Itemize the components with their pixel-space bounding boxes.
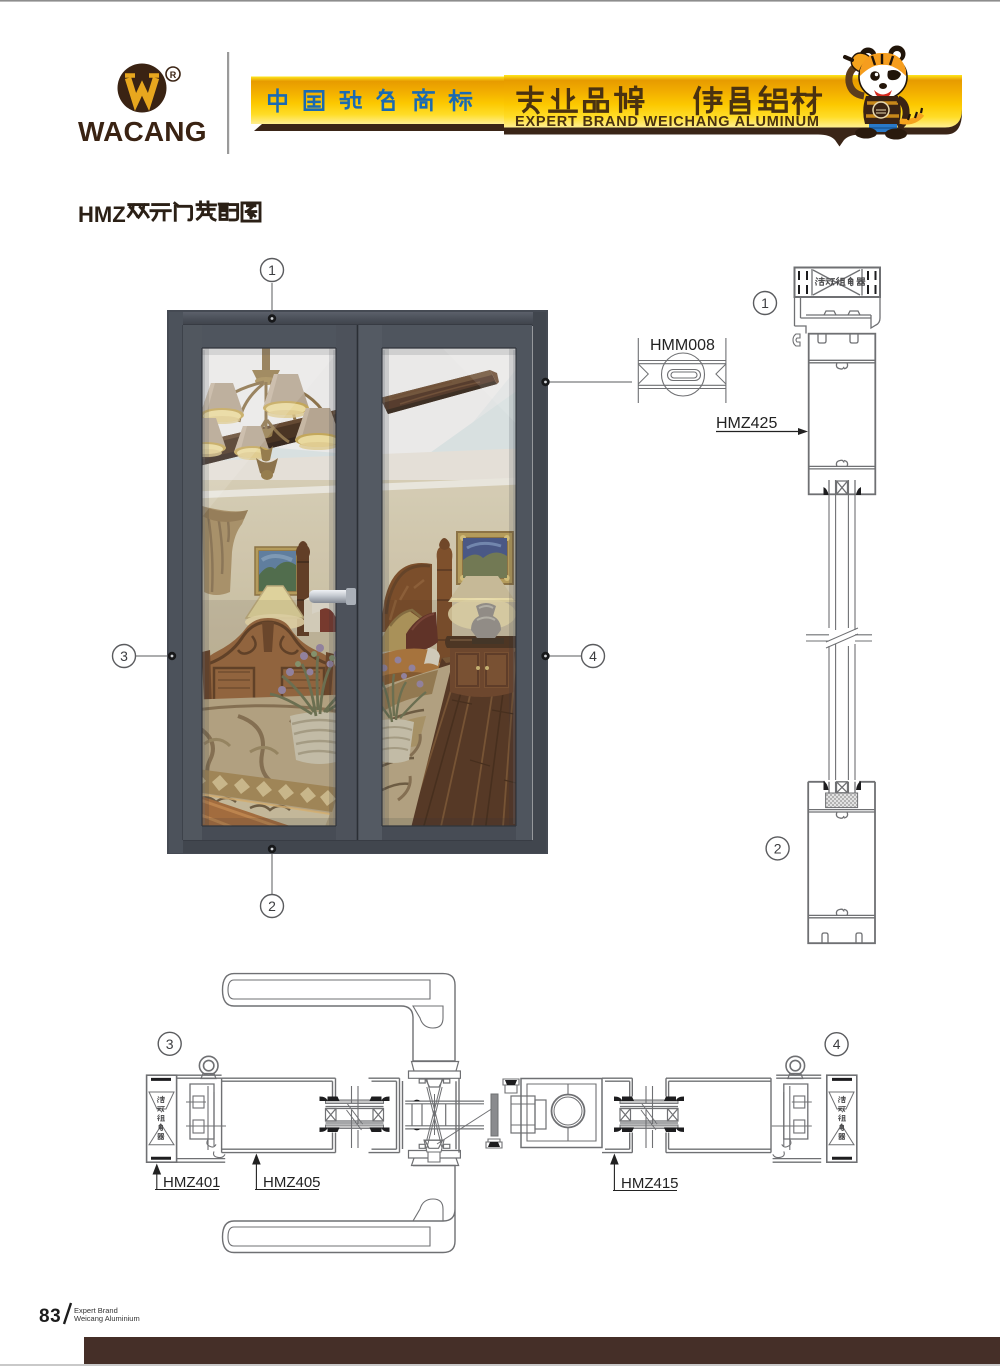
svg-text:HMZ425: HMZ425 xyxy=(716,415,777,432)
svg-text:1: 1 xyxy=(268,262,276,278)
svg-text:HMZ405: HMZ405 xyxy=(263,1174,321,1191)
svg-text:HMZ401: HMZ401 xyxy=(163,1174,221,1191)
svg-text:2: 2 xyxy=(268,898,276,914)
svg-text:3: 3 xyxy=(166,1036,174,1052)
svg-text:3: 3 xyxy=(120,648,128,664)
svg-text:1: 1 xyxy=(761,295,769,311)
svg-text:83: 83 xyxy=(39,1306,61,1327)
svg-text:HMZ: HMZ xyxy=(78,202,126,227)
svg-text:HMZ415: HMZ415 xyxy=(621,1175,679,1192)
svg-text:4: 4 xyxy=(589,648,597,664)
svg-text:HMM008: HMM008 xyxy=(650,337,715,354)
svg-text:2: 2 xyxy=(774,840,782,856)
svg-text:WACANG: WACANG xyxy=(78,116,209,147)
svg-text:4: 4 xyxy=(833,1036,841,1052)
svg-text:EXPERT BRAND WEICHANG ALUMINUM: EXPERT BRAND WEICHANG ALUMINUM xyxy=(515,114,819,130)
svg-text:Weicang Aluminium: Weicang Aluminium xyxy=(74,1314,140,1323)
svg-text:R: R xyxy=(170,70,177,80)
